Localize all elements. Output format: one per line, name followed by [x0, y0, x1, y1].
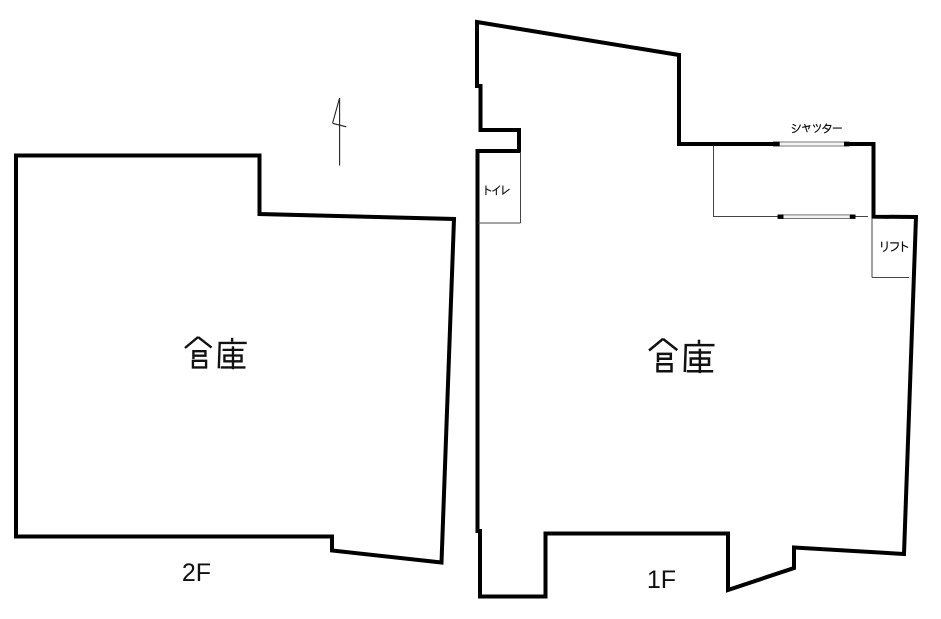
svg-text:2F: 2F — [182, 559, 211, 587]
svg-text:1F: 1F — [647, 566, 676, 594]
